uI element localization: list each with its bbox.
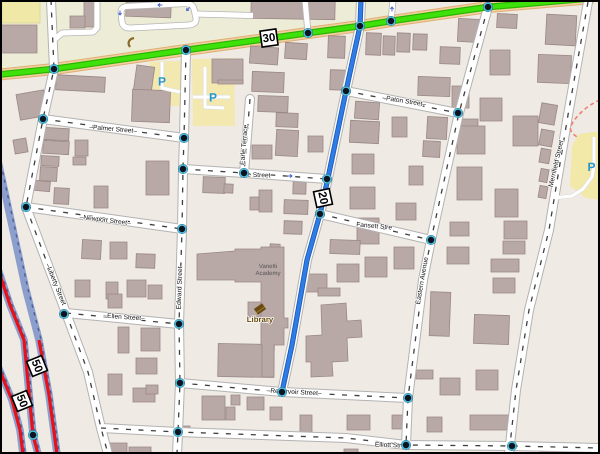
svg-text:Academy: Academy bbox=[255, 270, 280, 277]
svg-text:Elliott Str: Elliott Str bbox=[375, 442, 402, 450]
svg-text:30: 30 bbox=[262, 32, 276, 46]
svg-text:P: P bbox=[209, 91, 217, 105]
svg-text:Library: Library bbox=[247, 315, 274, 324]
svg-text:P: P bbox=[587, 160, 595, 174]
svg-text:Vanetti: Vanetti bbox=[259, 263, 277, 270]
svg-text:P: P bbox=[158, 75, 166, 89]
